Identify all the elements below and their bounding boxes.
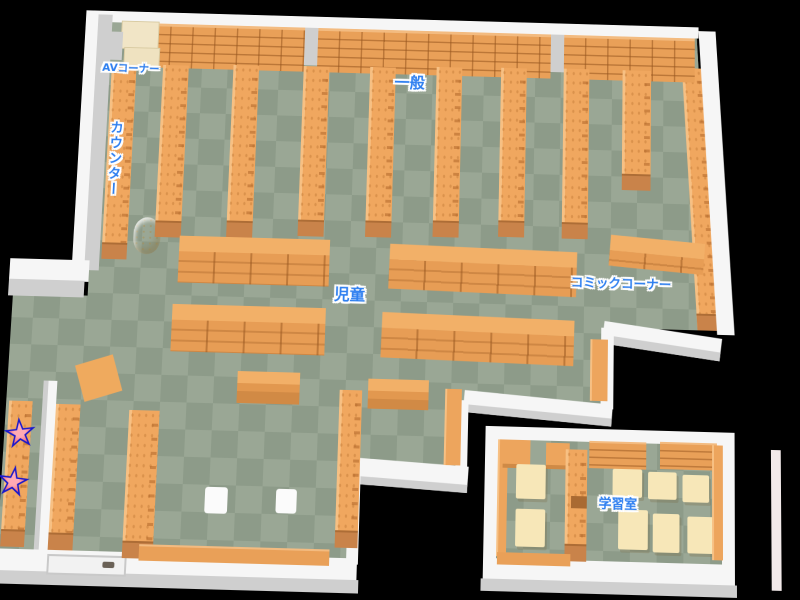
label-counter: カウンター (103, 120, 126, 197)
edge-wall-sliver (771, 450, 782, 591)
av-cabinet-1 (120, 21, 159, 50)
kids-shelf-row (178, 236, 331, 287)
bookshelf-column (498, 68, 527, 238)
study-wall-shelf (660, 442, 717, 471)
kids-shelf-row (170, 304, 326, 356)
label-children: 児童 (334, 281, 366, 305)
av-gray-cabinet (106, 31, 123, 60)
study-divider-notch (571, 496, 587, 509)
library-map: AVコーナー カウンター 一般 児童 コミックコーナー 学習室 (0, 0, 800, 600)
lower-wall-shelf (444, 389, 462, 466)
study-desk (653, 513, 680, 553)
bookshelf-column (562, 69, 590, 240)
comic-wall-shelf (590, 339, 608, 401)
kids-bench (236, 371, 300, 405)
wall-pillar-2 (551, 34, 565, 72)
bookshelf-column-short (622, 70, 651, 191)
kids-shelf-row (388, 244, 577, 297)
kids-bench (368, 379, 429, 411)
study-desk (648, 472, 677, 500)
study-desk (687, 516, 714, 554)
label-av-corner: AVコーナー (102, 59, 160, 76)
floor-cushion (204, 487, 228, 514)
bookshelf-column (365, 67, 396, 238)
bookshelf-column (432, 67, 462, 238)
label-comic-corner: コミックコーナー (571, 272, 672, 293)
study-east-wall (722, 432, 735, 585)
study-south-shelf (497, 552, 571, 566)
study-east-shelf (712, 445, 723, 560)
study-desk (516, 464, 546, 499)
wall-pillar-1 (304, 28, 319, 66)
label-study-room: 学習室 (599, 493, 638, 513)
study-desk (618, 509, 648, 550)
study-desk (515, 509, 545, 548)
entrance-door[interactable] (46, 554, 127, 577)
label-general: 一般 (394, 70, 425, 93)
lower-shelf (335, 390, 363, 548)
study-wall-shelf (589, 441, 646, 470)
floor-cushion (275, 489, 297, 514)
west-extension-wall-face (8, 279, 85, 298)
kids-shelf-row (380, 312, 574, 366)
study-desk (682, 475, 709, 503)
door-handle (102, 562, 114, 569)
